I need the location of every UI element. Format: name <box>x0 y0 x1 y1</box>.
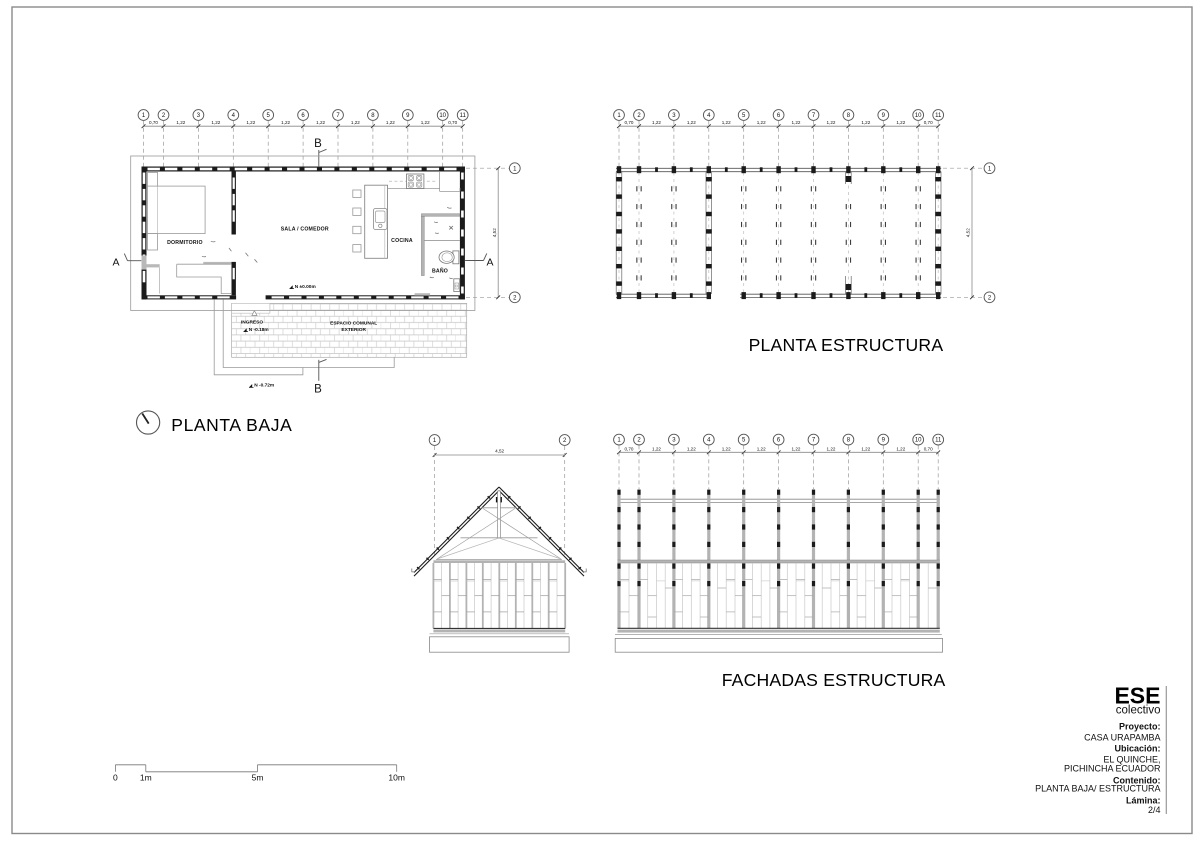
svg-text:0,70: 0,70 <box>924 120 933 125</box>
svg-text:1,22: 1,22 <box>351 120 360 125</box>
svg-text:10: 10 <box>439 113 446 119</box>
svg-text:COCINA: COCINA <box>391 238 413 244</box>
svg-text:0,70: 0,70 <box>625 120 634 125</box>
svg-text:B: B <box>314 138 322 150</box>
svg-text:ESPACIO COMUNAL: ESPACIO COMUNAL <box>330 320 377 326</box>
svg-text:1,22: 1,22 <box>792 446 801 451</box>
svg-text:BAÑO: BAÑO <box>432 268 448 275</box>
svg-text:0,70: 0,70 <box>149 120 158 125</box>
svg-text:1,22: 1,22 <box>386 120 395 125</box>
svg-text:1,22: 1,22 <box>896 446 905 451</box>
svg-text:1,22: 1,22 <box>861 446 870 451</box>
svg-text:N -0.18m: N -0.18m <box>249 327 269 333</box>
svg-text:10m: 10m <box>388 773 405 783</box>
svg-text:1,22: 1,22 <box>757 120 766 125</box>
svg-text:A: A <box>486 256 493 268</box>
svg-text:N -0.72m: N -0.72m <box>254 383 274 389</box>
svg-text:0,70: 0,70 <box>625 446 634 451</box>
svg-text:1,22: 1,22 <box>722 446 731 451</box>
svg-text:5m: 5m <box>252 773 264 783</box>
svg-text:1m: 1m <box>140 773 152 783</box>
svg-text:Ubicación:: Ubicación: <box>1114 744 1160 754</box>
svg-text:11: 11 <box>935 113 942 119</box>
svg-text:0,70: 0,70 <box>448 120 457 125</box>
svg-text:B: B <box>314 384 322 396</box>
svg-text:10: 10 <box>915 113 922 119</box>
svg-text:10: 10 <box>915 438 922 444</box>
svg-text:11: 11 <box>460 113 467 119</box>
svg-text:1,22: 1,22 <box>861 120 870 125</box>
svg-text:1,22: 1,22 <box>827 120 836 125</box>
svg-text:1,22: 1,22 <box>792 120 801 125</box>
svg-text:A: A <box>112 256 119 268</box>
svg-text:1,22: 1,22 <box>687 120 696 125</box>
svg-text:1,22: 1,22 <box>316 120 325 125</box>
svg-text:DORMITORIO: DORMITORIO <box>167 240 203 246</box>
svg-text:Lámina:: Lámina: <box>1126 796 1161 806</box>
svg-text:1,22: 1,22 <box>211 120 220 125</box>
svg-text:11: 11 <box>935 438 942 444</box>
svg-text:1,22: 1,22 <box>652 446 661 451</box>
svg-text:4,52: 4,52 <box>492 228 497 237</box>
svg-text:1,22: 1,22 <box>421 120 430 125</box>
svg-text:1,22: 1,22 <box>687 446 696 451</box>
svg-text:0: 0 <box>113 773 118 783</box>
svg-text:N ±0.00m: N ±0.00m <box>295 284 316 290</box>
svg-text:1,22: 1,22 <box>652 120 661 125</box>
svg-text:1,22: 1,22 <box>176 120 185 125</box>
svg-text:PICHINCHA ECUADOR: PICHINCHA ECUADOR <box>1064 764 1161 774</box>
svg-text:CASA URAPAMBA: CASA URAPAMBA <box>1084 733 1160 743</box>
svg-text:1,22: 1,22 <box>757 446 766 451</box>
svg-text:colectivo: colectivo <box>1116 705 1161 717</box>
svg-text:EXTERIOR: EXTERIOR <box>341 327 366 333</box>
svg-text:SALA / COMEDOR: SALA / COMEDOR <box>281 226 329 232</box>
svg-text:1,22: 1,22 <box>281 120 290 125</box>
svg-text:FACHADAS ESTRUCTURA: FACHADAS ESTRUCTURA <box>722 670 946 690</box>
svg-text:4,52: 4,52 <box>966 228 971 237</box>
svg-text:4,52: 4,52 <box>495 449 504 454</box>
svg-text:1,22: 1,22 <box>246 120 255 125</box>
svg-text:PLANTA BAJA: PLANTA BAJA <box>171 415 292 435</box>
svg-text:1,22: 1,22 <box>896 120 905 125</box>
svg-text:PLANTA ESTRUCTURA: PLANTA ESTRUCTURA <box>749 335 944 355</box>
svg-text:1,22: 1,22 <box>722 120 731 125</box>
svg-text:INGRESO: INGRESO <box>241 319 263 325</box>
svg-text:2/4: 2/4 <box>1148 805 1161 815</box>
svg-text:Proyecto:: Proyecto: <box>1119 722 1161 732</box>
svg-text:0,70: 0,70 <box>924 446 933 451</box>
svg-text:1,22: 1,22 <box>827 446 836 451</box>
svg-text:PLANTA BAJA/ ESTRUCTURA: PLANTA BAJA/ ESTRUCTURA <box>1035 784 1160 794</box>
